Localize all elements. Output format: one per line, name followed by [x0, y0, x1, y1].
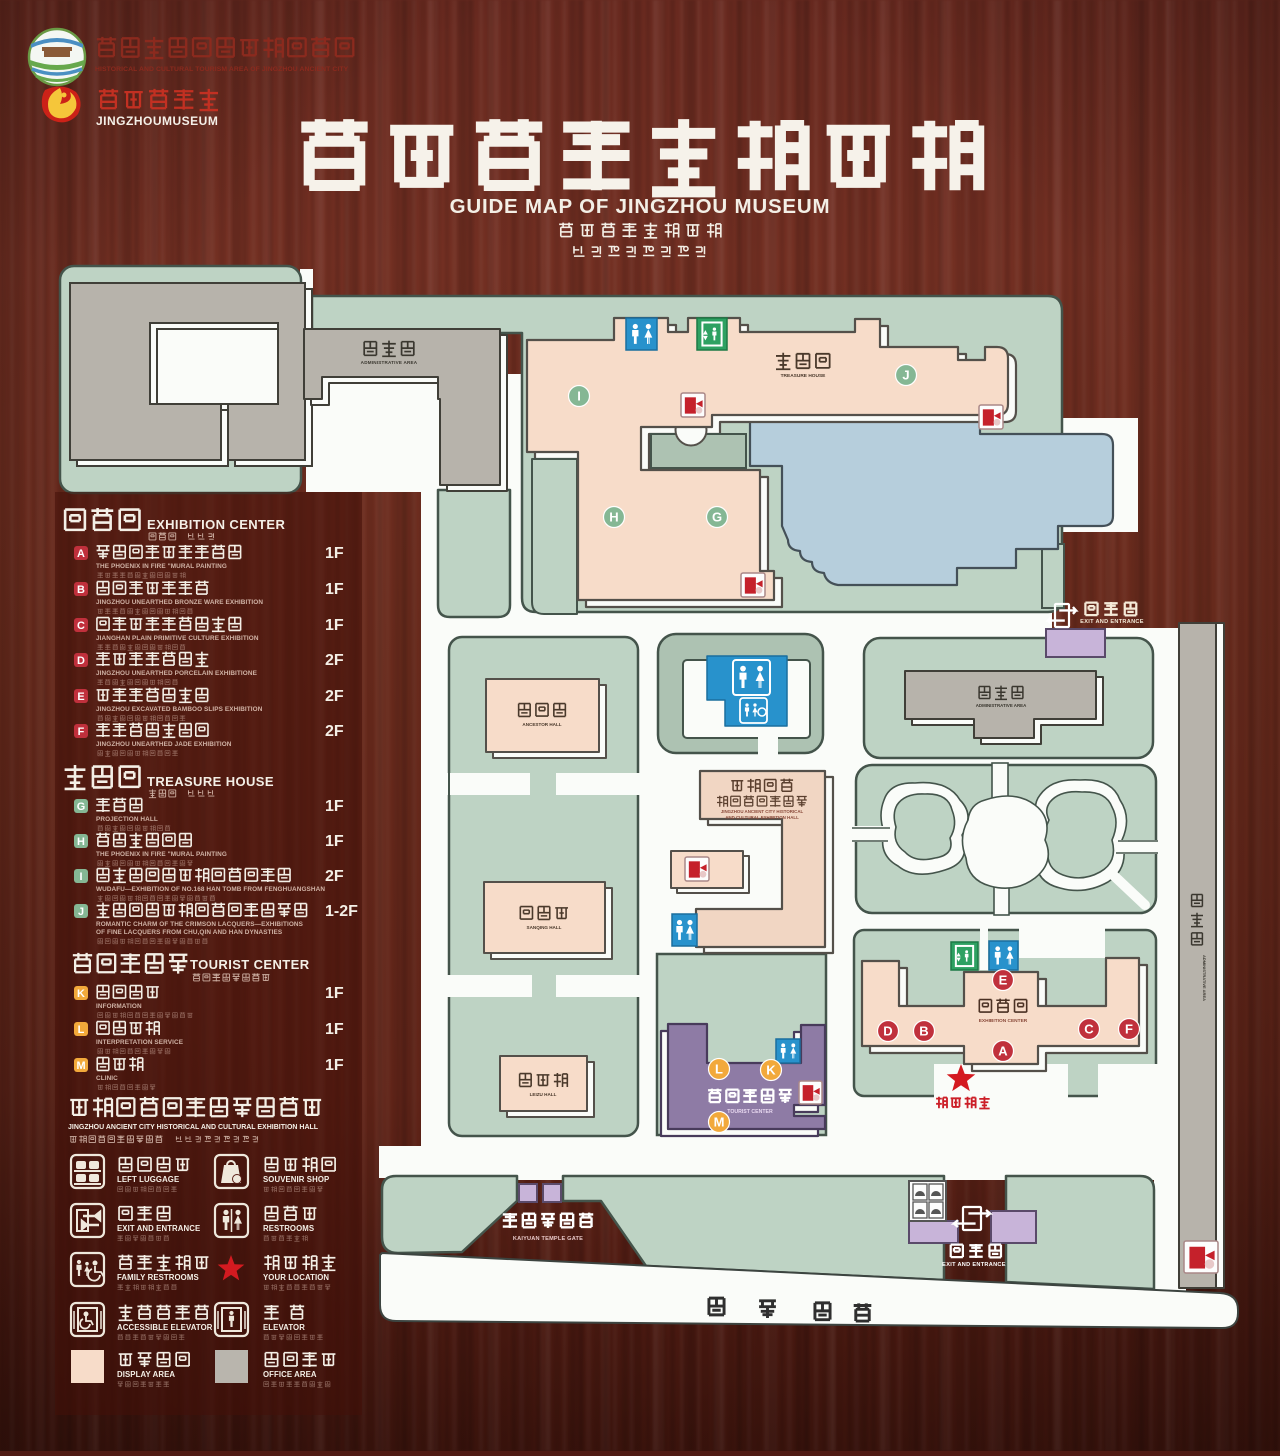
svg-text:2F: 2F [325, 688, 344, 705]
svg-text:EXHIBITION CENTER: EXHIBITION CENTER [147, 517, 285, 532]
svg-text:E: E [999, 973, 1008, 988]
svg-text:D: D [77, 655, 85, 667]
svg-text:JIANGHAN PLAIN PRIMITIVE CULTU: JIANGHAN PLAIN PRIMITIVE CULTURE EXHIBIT… [96, 635, 259, 642]
svg-text:JINGZHOU EXCAVATED BAMBOO SLIP: JINGZHOU EXCAVATED BAMBOO SLIPS EXHIBITI… [96, 706, 263, 713]
svg-text:I: I [577, 389, 581, 404]
svg-text:1-2F: 1-2F [325, 903, 358, 920]
svg-text:JINGZHOUMUSEUM: JINGZHOUMUSEUM [96, 114, 218, 128]
svg-text:1F: 1F [325, 798, 344, 815]
svg-text:ROMANTIC CHARM OF THE CRIMSON: ROMANTIC CHARM OF THE CRIMSON LACQUERS—E… [96, 921, 304, 928]
svg-text:TOURIST CENTER: TOURIST CENTER [727, 1109, 773, 1115]
svg-text:1F: 1F [325, 545, 344, 562]
svg-text:D: D [883, 1024, 892, 1039]
svg-text:JINGZHOU UNEARTHED BRONZE WARE: JINGZHOU UNEARTHED BRONZE WARE EXHIBITIO… [96, 599, 263, 606]
svg-text:EXIT AND ENTRANCE: EXIT AND ENTRANCE [942, 1262, 1006, 1268]
svg-text:H: H [609, 510, 618, 525]
svg-text:F: F [78, 726, 85, 738]
svg-text:2F: 2F [325, 868, 344, 885]
svg-text:OFFICE AREA: OFFICE AREA [263, 1370, 317, 1379]
svg-text:1F: 1F [325, 1021, 344, 1038]
svg-text:THE PHOENIX IN FIRE "MURAL PAI: THE PHOENIX IN FIRE "MURAL PAINTING [96, 563, 227, 570]
svg-text:1F: 1F [325, 985, 344, 1002]
svg-text:TOURIST CENTER: TOURIST CENTER [190, 957, 310, 972]
svg-text:EXHIBITION CENTER: EXHIBITION CENTER [979, 1018, 1028, 1024]
svg-text:SOUVENIR SHOP: SOUVENIR SHOP [263, 1175, 329, 1184]
svg-text:ADMINISTRATIVE AREA: ADMINISTRATIVE AREA [976, 703, 1027, 708]
svg-text:2F: 2F [325, 652, 344, 669]
svg-text:J: J [78, 906, 84, 918]
svg-text:M: M [76, 1060, 85, 1072]
svg-text:L: L [78, 1024, 85, 1036]
svg-text:B: B [77, 584, 85, 596]
svg-text:LEFT LUGGAGE: LEFT LUGGAGE [117, 1175, 179, 1184]
svg-text:E: E [77, 691, 84, 703]
svg-text:JINGZHOU UNEARTHED JADE EXHIBI: JINGZHOU UNEARTHED JADE EXHIBITION [96, 741, 232, 748]
svg-text:ANCESTOR HALL: ANCESTOR HALL [522, 722, 561, 727]
svg-text:ELEVATOR: ELEVATOR [263, 1323, 305, 1332]
svg-text:TREASURE HOUSE: TREASURE HOUSE [147, 774, 274, 789]
svg-text:LEIZU HALL: LEIZU HALL [530, 1092, 557, 1097]
svg-text:SANQING HALL: SANQING HALL [527, 925, 562, 930]
svg-text:EXIT AND ENTRANCE: EXIT AND ENTRANCE [1080, 619, 1144, 625]
svg-text:L: L [715, 1062, 723, 1077]
svg-text:THE PHOENIX IN FIRE "MURAL PAI: THE PHOENIX IN FIRE "MURAL PAINTING [96, 851, 227, 858]
svg-text:2F: 2F [325, 723, 344, 740]
svg-text:ACCESSIBLE ELEVATOR: ACCESSIBLE ELEVATOR [117, 1323, 213, 1332]
svg-text:ADMINISTRATIVE AREA: ADMINISTRATIVE AREA [1202, 955, 1207, 1001]
svg-text:1F: 1F [325, 833, 344, 850]
svg-text:G: G [77, 801, 85, 813]
svg-text:PROJECTION HALL: PROJECTION HALL [96, 816, 158, 823]
svg-text:B: B [919, 1024, 928, 1039]
svg-text:WUDAFU—EXHIBITION OF NO.168 HA: WUDAFU—EXHIBITION OF NO.168 HAN TOMB FRO… [96, 886, 325, 893]
svg-text:1F: 1F [325, 617, 344, 634]
svg-text:1F: 1F [325, 1057, 344, 1074]
svg-text:JINGZHOU ANCIENT CITY HISTORIC: JINGZHOU ANCIENT CITY HISTORICAL [721, 809, 804, 814]
svg-text:M: M [714, 1115, 725, 1130]
svg-text:KAIYUAN TEMPLE GATE: KAIYUAN TEMPLE GATE [513, 1236, 583, 1242]
svg-text:C: C [77, 620, 85, 632]
svg-text:1F: 1F [325, 581, 344, 598]
svg-text:ADMINISTRATIVE AREA: ADMINISTRATIVE AREA [361, 360, 418, 365]
svg-text:A: A [998, 1044, 1008, 1059]
svg-text:INTERPRETATION SERVICE: INTERPRETATION SERVICE [96, 1039, 184, 1046]
svg-text:AND CULTURAL EXHIBITION HALL: AND CULTURAL EXHIBITION HALL [725, 815, 799, 820]
svg-text:I: I [79, 871, 82, 883]
svg-text:DISPLAY AREA: DISPLAY AREA [117, 1370, 175, 1379]
svg-text:K: K [77, 988, 85, 1000]
svg-text:K: K [766, 1063, 776, 1078]
svg-text:C: C [1084, 1022, 1094, 1037]
svg-text:F: F [1125, 1022, 1133, 1037]
svg-text:JINGZHOU ANCIENT CITY HISTORIC: JINGZHOU ANCIENT CITY HISTORICAL AND CUL… [68, 1124, 319, 1131]
svg-text:CLINIC: CLINIC [96, 1075, 118, 1082]
svg-text:EXIT AND ENTRANCE: EXIT AND ENTRANCE [117, 1224, 200, 1233]
svg-text:G: G [712, 510, 722, 525]
svg-text:J: J [902, 368, 909, 383]
svg-text:FAMILY RESTROOMS: FAMILY RESTROOMS [117, 1273, 199, 1282]
svg-text:RESTROOMS: RESTROOMS [263, 1224, 314, 1233]
svg-text:A: A [77, 548, 85, 560]
svg-text:YOUR LOCATION: YOUR LOCATION [263, 1273, 329, 1282]
svg-text:H: H [77, 836, 85, 848]
svg-text:TREASURE HOUSE: TREASURE HOUSE [781, 373, 827, 379]
svg-text:HISTORICAL AND CULTURAL TOURIS: HISTORICAL AND CULTURAL TOURISM AREA OF … [95, 66, 349, 73]
svg-text:JINGZHOU UNEARTHED PORCELAIN E: JINGZHOU UNEARTHED PORCELAIN EXHIBITIONE [96, 670, 258, 677]
svg-text:OF FINE LACQUERS FROM CHU,QIN: OF FINE LACQUERS FROM CHU,QIN AND HAN DY… [96, 929, 283, 936]
svg-text:INFORMATION: INFORMATION [96, 1003, 142, 1010]
svg-text:GUIDE MAP OF JINGZHOU MUSEUM: GUIDE MAP OF JINGZHOU MUSEUM [450, 195, 831, 218]
